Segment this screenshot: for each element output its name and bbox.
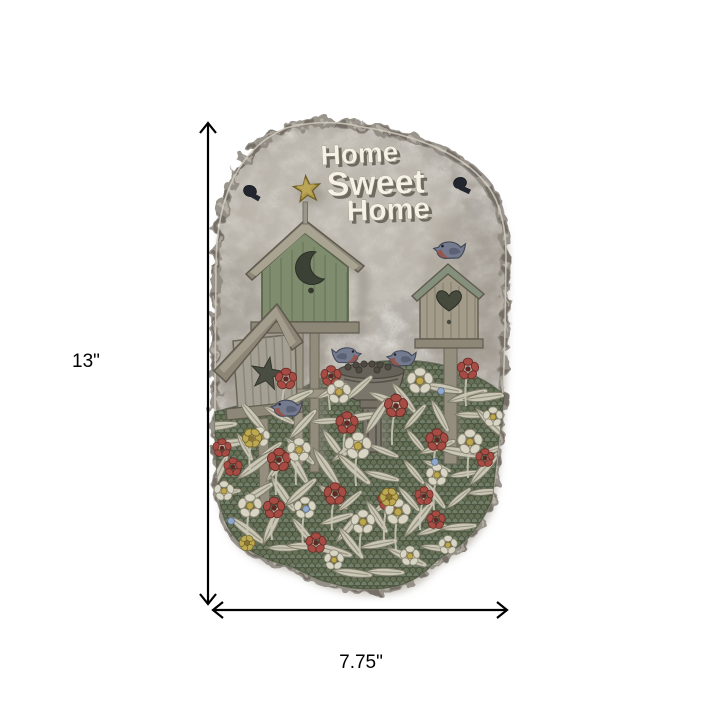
svg-text:7.75": 7.75": [339, 652, 383, 673]
svg-text:Home: Home: [346, 192, 430, 228]
svg-text:13": 13": [72, 351, 100, 372]
